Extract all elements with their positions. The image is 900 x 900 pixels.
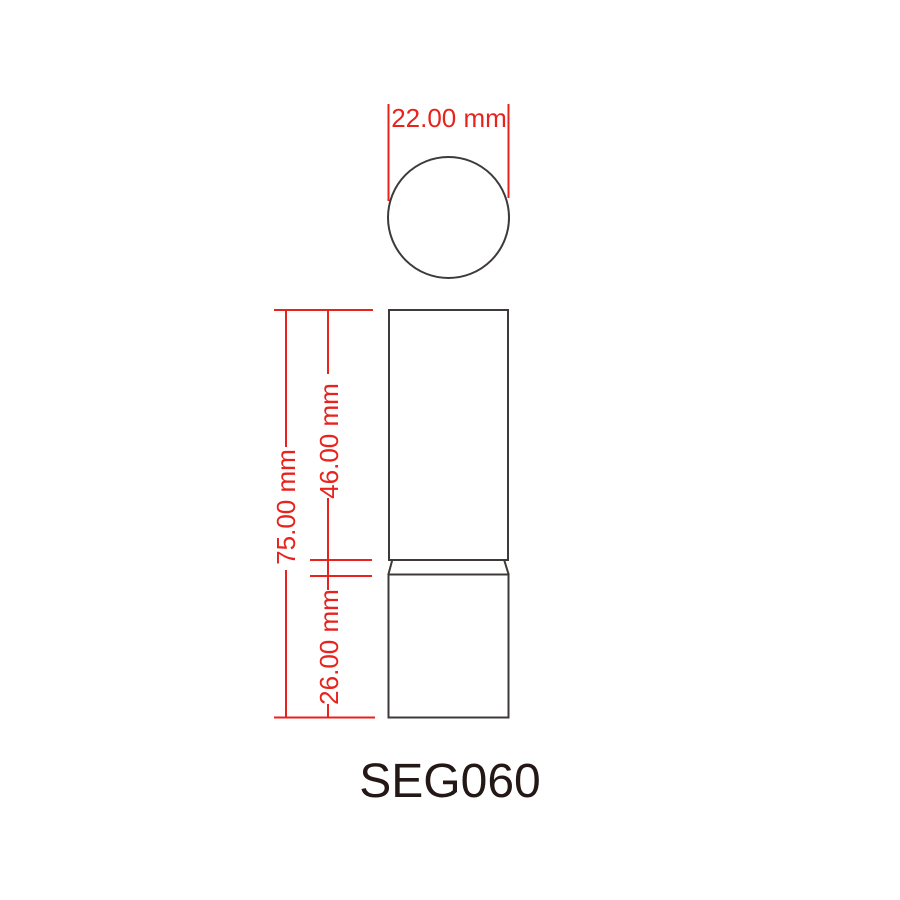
diameter-dimension-label: 22.00 mm [391,103,507,133]
total-height-dimension-label: 75.00 mm [271,449,301,565]
base-height-dimension-label: 26.00 mm [314,589,344,705]
product-outline-group [388,157,509,718]
front-view-base-outline [389,575,509,718]
front-view-neck-left-edge [389,561,393,574]
product-code-label: SEG060 [359,755,540,808]
front-view-neck-right-edge [505,561,509,574]
top-view-circle [388,157,509,278]
cap-height-dimension-label: 46.00 mm [314,383,344,499]
technical-drawing-canvas: 22.00 mm 75.00 mm 46.00 mm 26.00 mm SEG0… [0,0,900,900]
drawing-page: 22.00 mm 75.00 mm 46.00 mm 26.00 mm SEG0… [0,0,900,900]
front-view-cap-outline [389,310,508,560]
